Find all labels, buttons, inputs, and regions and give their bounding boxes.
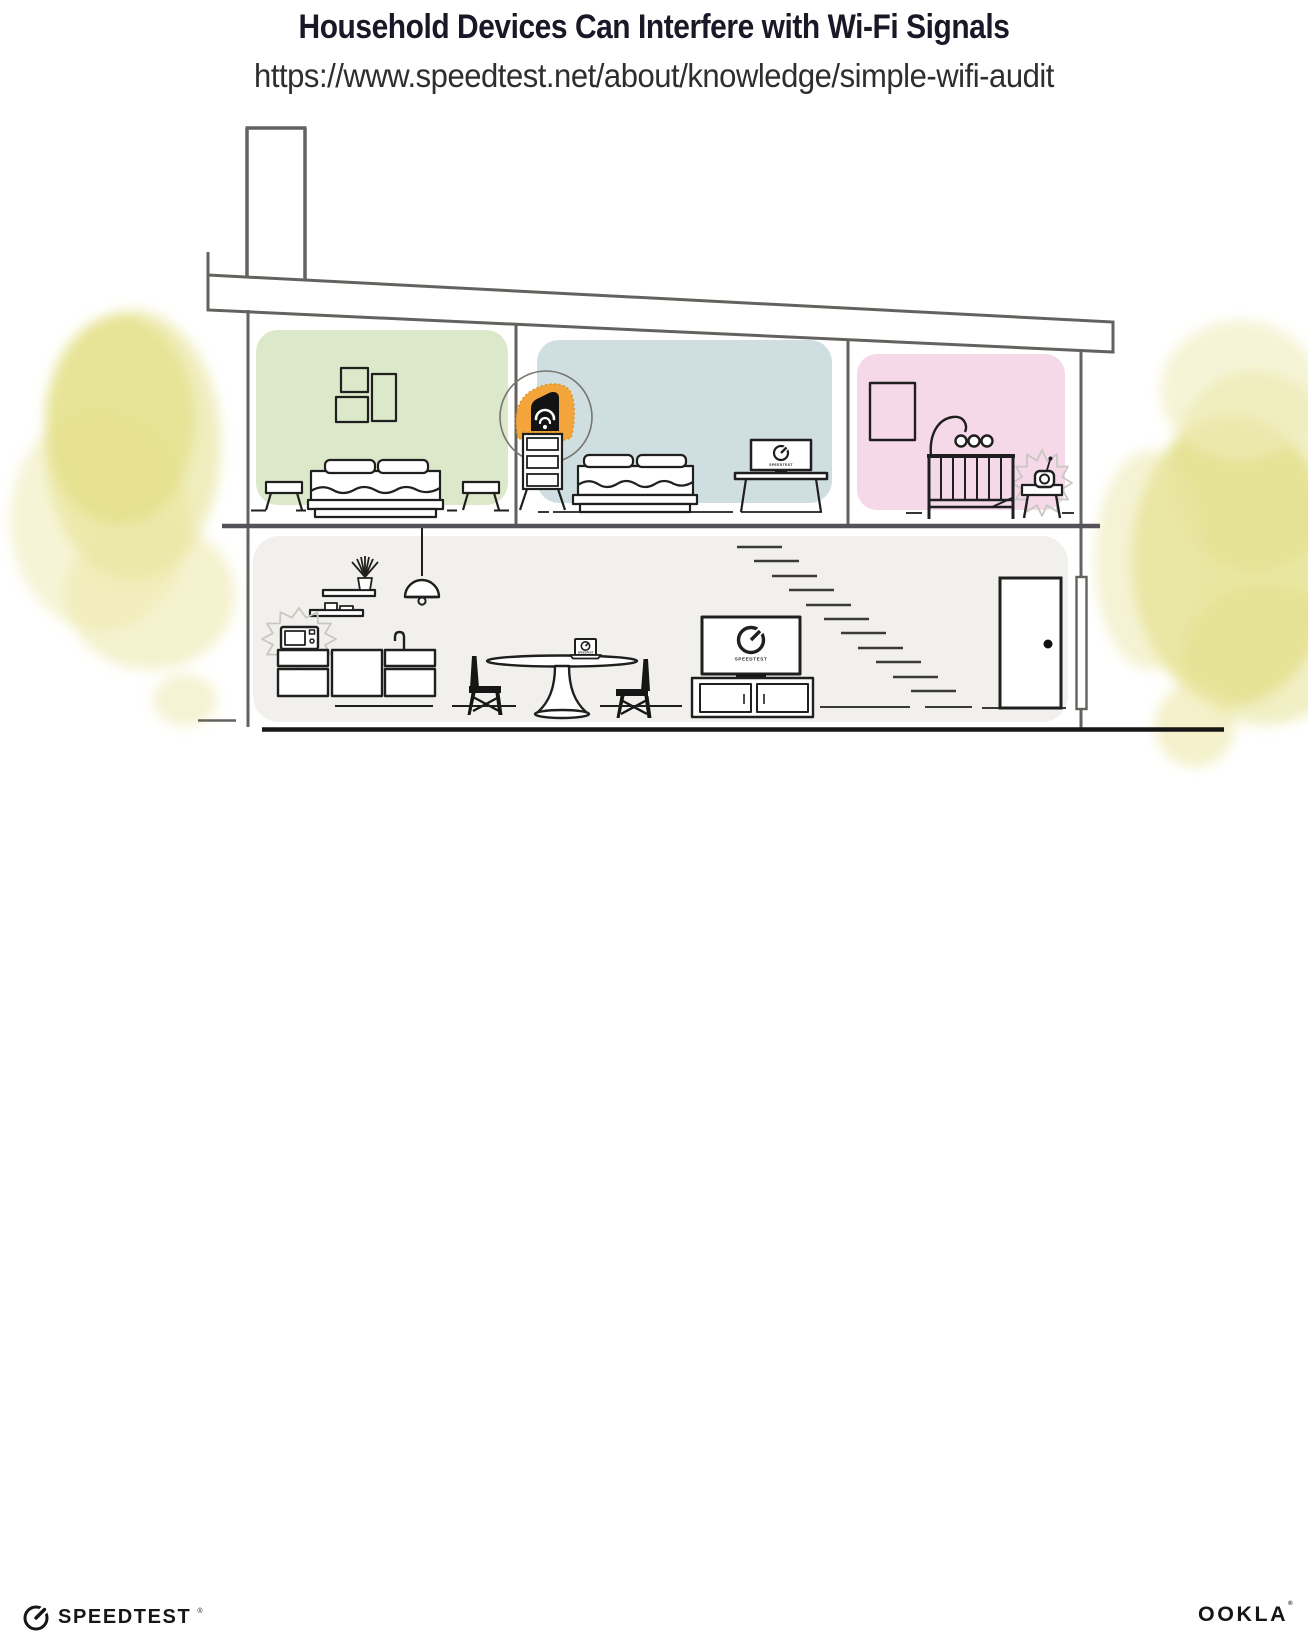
registered-mark: ® (1288, 1601, 1295, 1607)
bowl (325, 603, 337, 610)
laptop-screen-label: SPEEDTEST (578, 651, 594, 655)
downspout (1077, 577, 1087, 709)
tv-icon: SPEEDTEST (702, 617, 800, 678)
page-title: Household Devices Can Interfere with Wi-… (78, 0, 1229, 47)
media-console (692, 678, 813, 717)
infographic-footer: SPEEDTEST® OOKLA® (0, 801, 1308, 861)
microwave-icon (281, 627, 318, 649)
bowl (340, 606, 353, 610)
tv-screen-label: SPEEDTEST (735, 657, 768, 662)
kitchen-counter (278, 650, 435, 696)
laptop-icon: SPEEDTEST (570, 639, 601, 659)
tree-foliage-right (1095, 320, 1308, 767)
pillow (378, 460, 428, 473)
ookla-wordmark: OOKLA (1198, 1603, 1288, 1626)
pillow (637, 455, 686, 467)
house-illustration: SPEEDTEST (0, 0, 1308, 861)
tv-area: SPEEDTEST (692, 617, 813, 717)
speedtest-logo: SPEEDTEST® (21, 1602, 204, 1632)
speedtest-gauge-icon (21, 1602, 51, 1632)
pillow (584, 455, 633, 467)
desk-monitor-label: SPEEDTEST (769, 463, 793, 467)
chimney (246, 128, 307, 287)
pillow (325, 460, 375, 473)
infographic-header: Household Devices Can Interfere with Wi-… (0, 0, 1308, 95)
source-url: https://www.speedtest.net/about/knowledg… (39, 47, 1269, 95)
registered-mark: ® (197, 1608, 202, 1615)
desk-monitor: SPEEDTEST (751, 440, 811, 473)
speedtest-wordmark: SPEEDTEST (58, 1606, 191, 1629)
tree-foliage-left (10, 310, 235, 726)
ookla-logo: OOKLA® (1198, 1603, 1295, 1627)
bed (308, 460, 443, 517)
door-knob (1044, 640, 1053, 649)
